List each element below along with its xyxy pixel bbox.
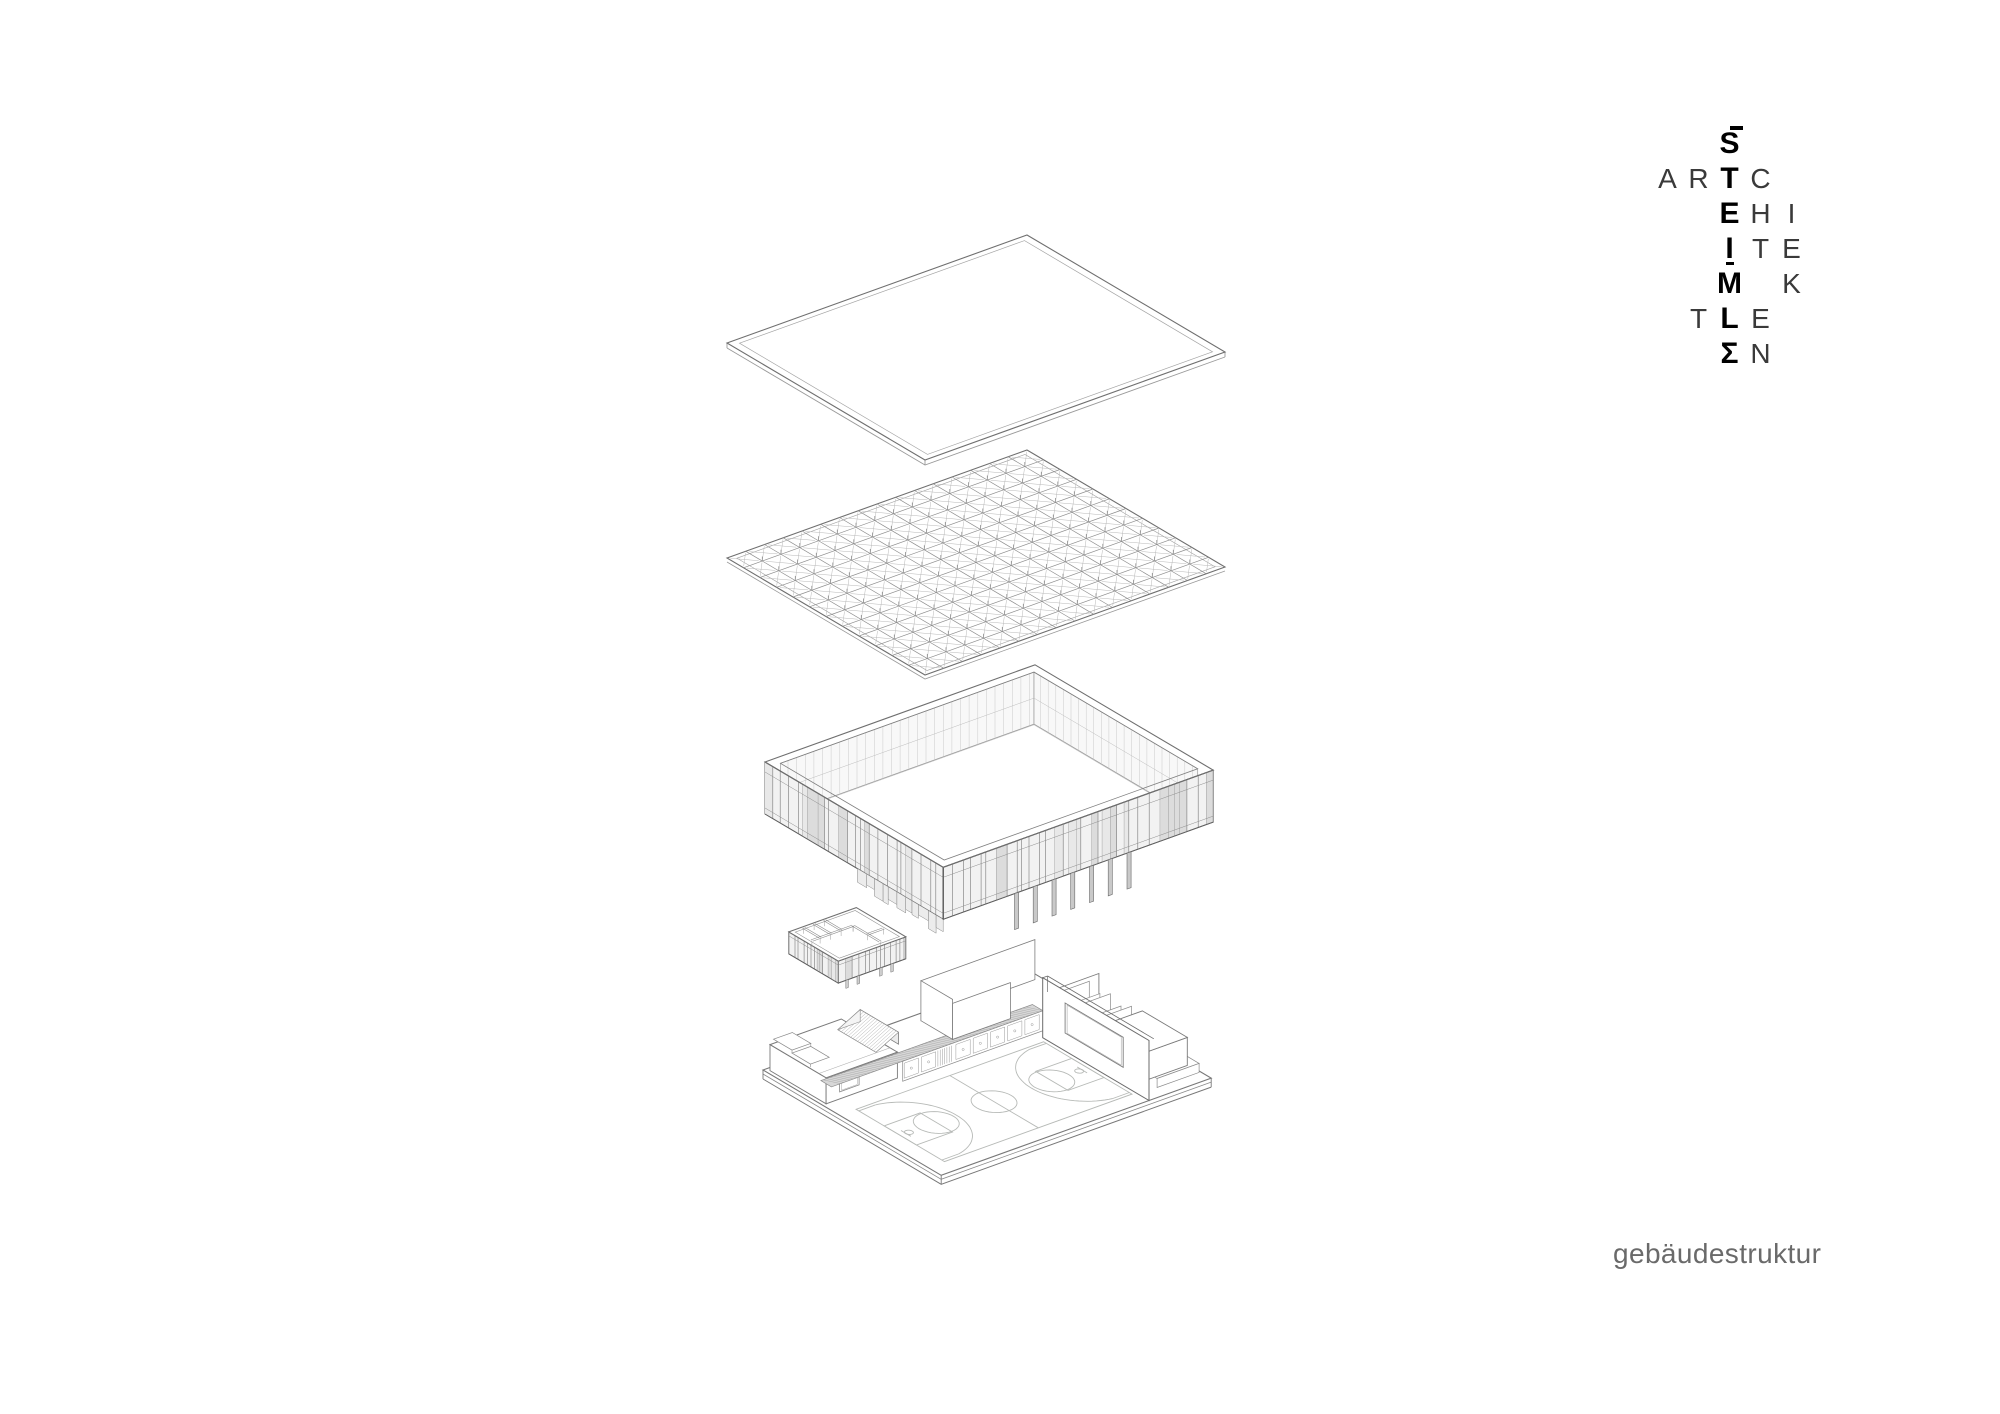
facade-louver-layer [765, 665, 1213, 933]
logo-letter-bold-0: S [1714, 126, 1745, 161]
logo-letter-7: I [1776, 196, 1807, 231]
logo-letter-2: R [1683, 161, 1714, 196]
logo-letter-6: H [1745, 196, 1776, 231]
roof-slab-layer [727, 235, 1225, 465]
logo-letter-bold-3: T [1714, 161, 1745, 196]
logo-letter-bold-11: M [1714, 266, 1745, 301]
logo-letter-13: T [1683, 301, 1714, 336]
logo-letter-9: T [1745, 231, 1776, 266]
logo-letter-bold-14: L [1714, 301, 1745, 336]
interior-annex-layer [789, 908, 906, 989]
logo-letter-bold-8: I [1714, 231, 1745, 266]
logo-letter-bold-16: Σ [1714, 336, 1745, 371]
logo-letter-4: C [1745, 161, 1776, 196]
logo-letter-15: E [1745, 301, 1776, 336]
roof-structure-grid-layer [727, 450, 1225, 679]
logo-letter-1: A [1652, 161, 1683, 196]
logo-letter-17: N [1745, 336, 1776, 371]
steimle-architekten-logo: SARTCEHIITEMKTLEΣN [1652, 126, 1807, 371]
logo-letter-12: K [1776, 266, 1807, 301]
presentation-sheet: SARTCEHIITEMKTLEΣN gebäudestruktur [0, 0, 2000, 1414]
logo-letter-bold-5: E [1714, 196, 1745, 231]
drawing-caption: gebäudestruktur [1613, 1238, 1821, 1270]
logo-letter-10: E [1776, 231, 1807, 266]
